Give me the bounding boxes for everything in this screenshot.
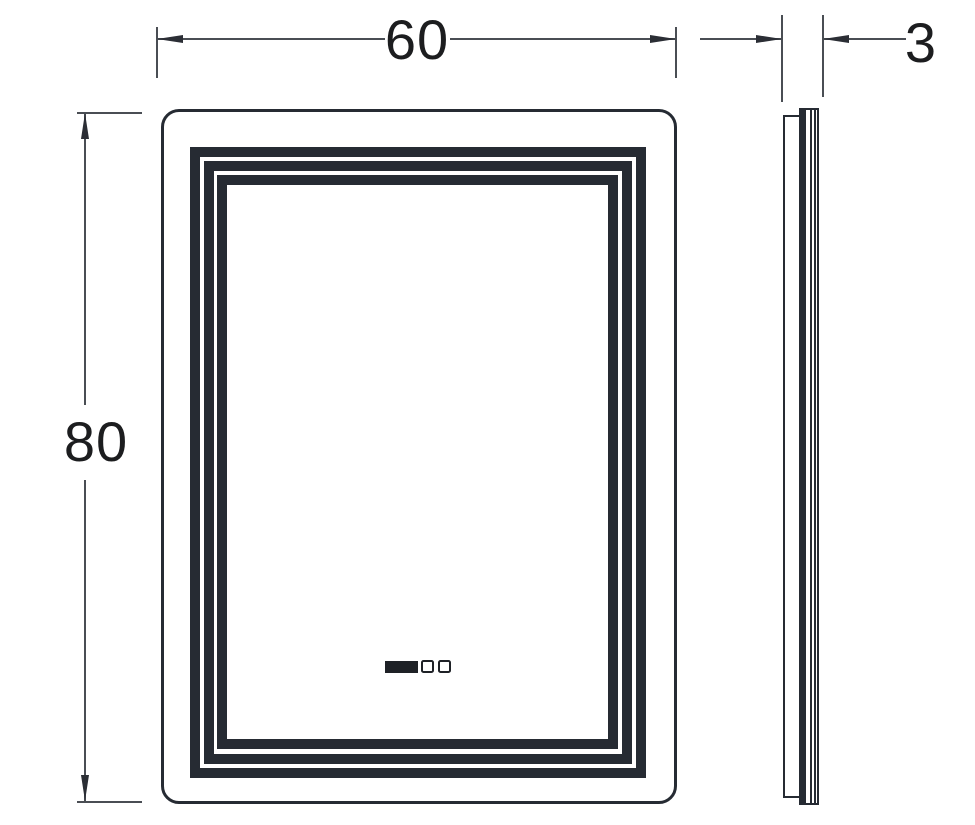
mirror-technical-drawing: 60 80 3 [0,0,975,825]
dimension-line [157,38,385,40]
height-dimension-label: 80 [64,414,128,470]
arrowhead-right-icon [650,35,676,43]
touch-sensor-icon-1 [421,660,434,673]
width-dimension-label: 60 [385,12,449,68]
side-glass-layer-line [814,110,816,803]
extension-line [822,15,824,97]
side-glass-coating [799,108,806,805]
side-glass-layer-line [810,110,812,803]
arrowhead-down-icon [81,775,89,801]
arrowhead-right-icon [756,35,782,43]
arrowhead-left-icon [823,35,849,43]
depth-dimension-label: 3 [905,15,937,71]
extension-line [781,15,783,102]
touch-sensor-icon-2 [438,660,451,673]
dimension-line [450,38,676,40]
extension-line [77,801,142,803]
arrowhead-up-icon [81,113,89,139]
dimension-line [84,113,86,405]
led-display-icon [385,661,418,673]
arrowhead-left-icon [157,35,183,43]
dimension-line [84,480,86,801]
